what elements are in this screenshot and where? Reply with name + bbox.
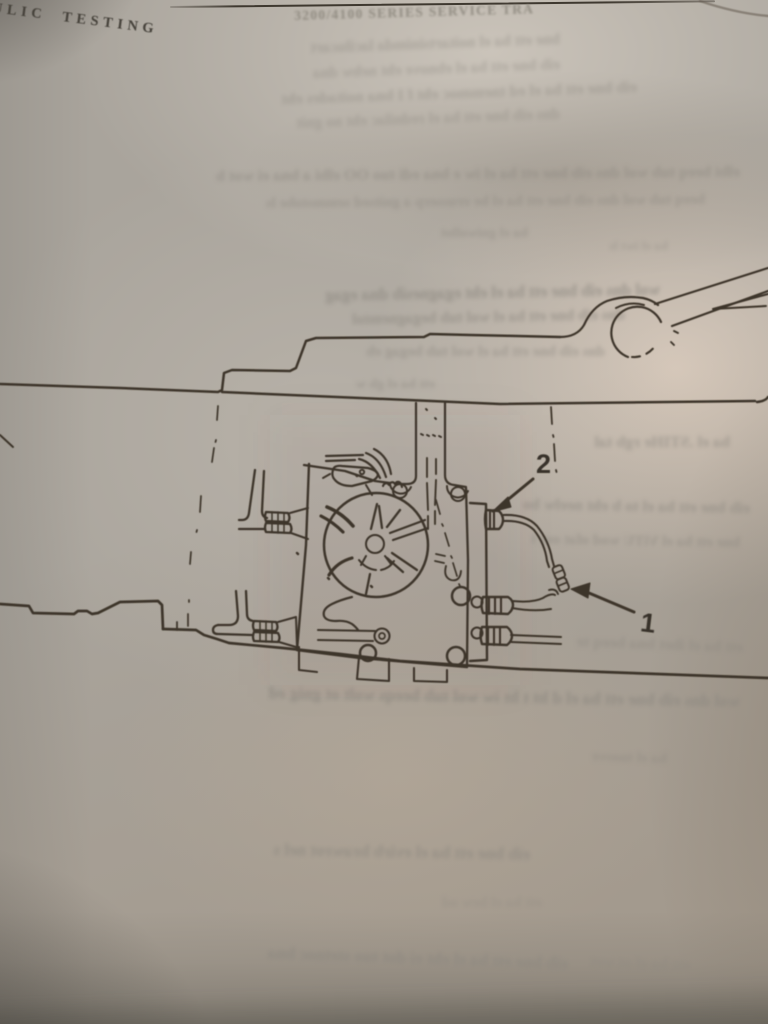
svg-text:1: 1: [639, 607, 658, 639]
svg-text:2: 2: [536, 449, 551, 479]
